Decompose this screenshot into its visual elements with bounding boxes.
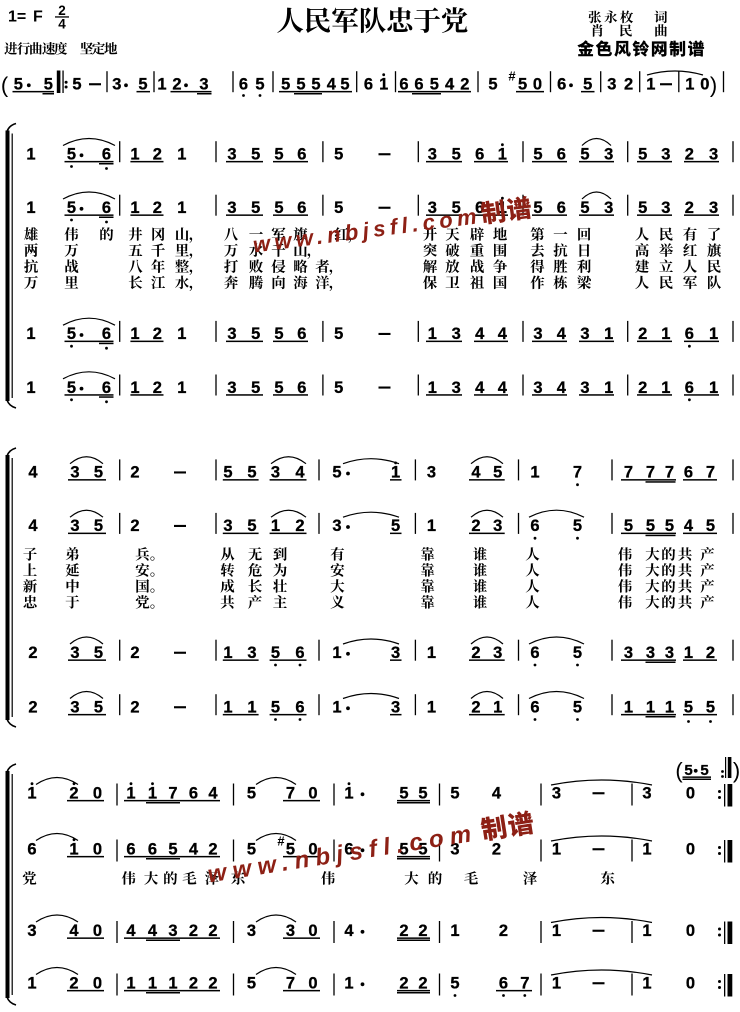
svg-text:0: 0	[533, 76, 542, 94]
svg-text:5: 5	[391, 517, 400, 535]
svg-text:4: 4	[557, 379, 567, 397]
svg-text:1: 1	[130, 146, 139, 164]
svg-text:0: 0	[686, 785, 695, 803]
svg-text:7: 7	[286, 785, 295, 803]
svg-text:1: 1	[427, 644, 436, 662]
svg-text:7: 7	[706, 464, 715, 482]
svg-text:1: 1	[130, 325, 139, 343]
svg-text:4: 4	[498, 379, 508, 397]
svg-text:1: 1	[642, 841, 651, 859]
svg-text:6: 6	[148, 841, 157, 859]
svg-text:5: 5	[334, 379, 343, 397]
svg-text:2: 2	[153, 146, 162, 164]
svg-text:): )	[710, 73, 717, 98]
svg-text:2: 2	[499, 922, 508, 940]
svg-text:3: 3	[661, 199, 670, 217]
svg-text:4: 4	[327, 76, 337, 94]
svg-text:5: 5	[67, 199, 76, 217]
svg-text:0: 0	[686, 975, 695, 993]
svg-text:5: 5	[450, 785, 459, 803]
svg-text:2: 2	[130, 517, 139, 535]
svg-text:5: 5	[247, 975, 256, 993]
svg-text:5: 5	[138, 76, 147, 94]
svg-text:4: 4	[28, 464, 38, 482]
svg-text:2: 2	[624, 76, 633, 94]
svg-text:2: 2	[130, 644, 139, 662]
svg-text:7: 7	[665, 464, 674, 482]
svg-text:5: 5	[334, 325, 343, 343]
svg-text:5: 5	[706, 517, 715, 535]
svg-text:4: 4	[189, 841, 199, 859]
svg-text:): )	[733, 758, 740, 783]
svg-text:3: 3	[452, 379, 461, 397]
svg-text:1: 1	[177, 146, 186, 164]
svg-text:4: 4	[69, 922, 79, 940]
svg-text:5: 5	[271, 699, 280, 717]
svg-text:4: 4	[208, 785, 218, 803]
svg-text:1: 1	[642, 975, 651, 993]
svg-text:3: 3	[332, 517, 341, 535]
svg-text:3: 3	[227, 379, 236, 397]
svg-text:5: 5	[94, 644, 103, 662]
svg-text:2: 2	[208, 922, 217, 940]
svg-text:1: 1	[493, 699, 502, 717]
svg-text:3: 3	[493, 644, 502, 662]
svg-text:1: 1	[427, 699, 436, 717]
svg-text:1: 1	[685, 76, 694, 94]
svg-text:5: 5	[251, 146, 260, 164]
svg-text:4: 4	[492, 785, 502, 803]
svg-text:6: 6	[530, 517, 539, 535]
svg-text:3: 3	[168, 922, 177, 940]
svg-text:3: 3	[227, 199, 236, 217]
svg-text:5: 5	[488, 76, 497, 94]
svg-text:5: 5	[255, 76, 264, 94]
svg-text:4: 4	[126, 922, 136, 940]
svg-text:6: 6	[499, 975, 508, 993]
svg-text:5: 5	[14, 76, 23, 94]
svg-text:6: 6	[102, 379, 111, 397]
svg-text:1: 1	[661, 325, 670, 343]
svg-text:1: 1	[552, 841, 561, 859]
svg-text:3: 3	[227, 146, 236, 164]
svg-text:1: 1	[428, 325, 437, 343]
svg-text:6: 6	[685, 325, 694, 343]
svg-text:1: 1	[684, 644, 693, 662]
svg-text:3: 3	[493, 517, 502, 535]
svg-text:6: 6	[475, 146, 484, 164]
svg-text:0: 0	[93, 841, 102, 859]
svg-text:3: 3	[580, 379, 589, 397]
svg-text:5: 5	[247, 785, 256, 803]
svg-text:5: 5	[311, 76, 320, 94]
svg-text:2: 2	[208, 841, 217, 859]
svg-text:2: 2	[418, 922, 427, 940]
svg-text:1: 1	[177, 199, 186, 217]
svg-text:4: 4	[295, 464, 305, 482]
svg-text:5: 5	[418, 785, 427, 803]
svg-text:6: 6	[399, 76, 408, 94]
svg-text:0: 0	[308, 785, 317, 803]
svg-text:4: 4	[684, 517, 694, 535]
svg-text:1: 1	[247, 699, 256, 717]
svg-text:5: 5	[580, 199, 589, 217]
svg-text:5: 5	[274, 379, 283, 397]
svg-text:6: 6	[364, 76, 373, 94]
svg-text:0: 0	[686, 922, 695, 940]
svg-text:3: 3	[428, 146, 437, 164]
svg-text:3: 3	[223, 517, 232, 535]
svg-text:5: 5	[67, 325, 76, 343]
svg-text:7: 7	[646, 464, 655, 482]
svg-text:6: 6	[189, 785, 198, 803]
svg-text:5: 5	[247, 464, 256, 482]
svg-text:1: 1	[126, 785, 135, 803]
svg-text:1: 1	[26, 199, 35, 217]
svg-text:6: 6	[557, 76, 566, 94]
svg-text:6: 6	[27, 841, 36, 859]
svg-text:1: 1	[27, 975, 36, 993]
svg-text:5: 5	[296, 76, 305, 94]
svg-text:3: 3	[247, 922, 256, 940]
svg-text:5: 5	[340, 76, 349, 94]
svg-text:2: 2	[638, 379, 647, 397]
svg-text:2: 2	[706, 644, 715, 662]
svg-text:6: 6	[239, 76, 248, 94]
svg-text:0: 0	[93, 922, 102, 940]
svg-text:5: 5	[638, 146, 647, 164]
svg-text:5: 5	[251, 325, 260, 343]
svg-text:2: 2	[153, 199, 162, 217]
svg-text:3: 3	[552, 785, 561, 803]
svg-text:2: 2	[69, 785, 78, 803]
svg-text:3: 3	[70, 464, 79, 482]
svg-text:5: 5	[44, 76, 53, 94]
svg-text:4: 4	[498, 325, 508, 343]
svg-text:5: 5	[251, 199, 260, 217]
svg-text:2: 2	[685, 146, 694, 164]
svg-text:6: 6	[530, 699, 539, 717]
svg-text:1: 1	[661, 379, 670, 397]
svg-text:1: 1	[642, 922, 651, 940]
svg-text:5: 5	[583, 76, 592, 94]
svg-text:5: 5	[274, 199, 283, 217]
svg-text:1: 1	[332, 699, 341, 717]
svg-text:5: 5	[646, 517, 655, 535]
svg-text:1: 1	[344, 785, 353, 803]
svg-text:1=: 1=	[8, 9, 26, 26]
svg-text:(: (	[675, 758, 683, 783]
svg-text:5: 5	[274, 325, 283, 343]
svg-text:0: 0	[700, 76, 709, 94]
svg-text:1: 1	[69, 841, 78, 859]
svg-text:3: 3	[642, 785, 651, 803]
svg-text:#: #	[277, 834, 285, 849]
svg-text:7: 7	[520, 975, 529, 993]
svg-text:3: 3	[391, 644, 400, 662]
svg-text:5: 5	[684, 699, 693, 717]
svg-text:1: 1	[552, 922, 561, 940]
svg-text:5: 5	[580, 146, 589, 164]
svg-text:4: 4	[58, 17, 66, 32]
svg-text:5: 5	[573, 644, 582, 662]
svg-text:2: 2	[638, 325, 647, 343]
svg-text:2: 2	[399, 922, 408, 940]
svg-text:6: 6	[557, 146, 566, 164]
svg-text:5: 5	[573, 699, 582, 717]
svg-text:1: 1	[27, 785, 36, 803]
svg-text:5: 5	[168, 841, 177, 859]
svg-text:6: 6	[530, 644, 539, 662]
svg-text:2: 2	[399, 975, 408, 993]
svg-text:0: 0	[686, 841, 695, 859]
svg-text:5: 5	[247, 517, 256, 535]
svg-text:3: 3	[665, 644, 674, 662]
svg-text:1: 1	[148, 785, 157, 803]
svg-text:5: 5	[67, 146, 76, 164]
svg-text:6: 6	[684, 464, 693, 482]
svg-text:1: 1	[177, 379, 186, 397]
svg-text:2: 2	[471, 699, 480, 717]
svg-text:5: 5	[94, 464, 103, 482]
svg-text:1: 1	[126, 975, 135, 993]
svg-text:7: 7	[624, 464, 633, 482]
svg-text:6: 6	[102, 199, 111, 217]
svg-text:1: 1	[130, 379, 139, 397]
svg-text:1: 1	[177, 325, 186, 343]
svg-text:5: 5	[450, 975, 459, 993]
svg-text:3: 3	[604, 146, 613, 164]
svg-text:5: 5	[624, 517, 633, 535]
svg-text:4: 4	[344, 922, 354, 940]
svg-text:6: 6	[414, 76, 423, 94]
svg-text:3: 3	[247, 644, 256, 662]
svg-text:3: 3	[709, 146, 718, 164]
svg-text:2: 2	[153, 325, 162, 343]
svg-text:3: 3	[70, 517, 79, 535]
svg-text:6: 6	[295, 699, 304, 717]
svg-text:3: 3	[427, 464, 436, 482]
svg-text:0: 0	[93, 785, 102, 803]
svg-text:3: 3	[227, 325, 236, 343]
svg-text:3: 3	[286, 922, 295, 940]
svg-text:3: 3	[70, 644, 79, 662]
svg-text:1: 1	[604, 379, 613, 397]
svg-text:2: 2	[208, 975, 217, 993]
svg-text:5: 5	[334, 146, 343, 164]
svg-text:3: 3	[199, 76, 208, 94]
svg-text:5: 5	[251, 379, 260, 397]
svg-text:1: 1	[26, 325, 35, 343]
svg-text:1: 1	[223, 644, 232, 662]
svg-text:1: 1	[148, 975, 157, 993]
svg-text:0: 0	[308, 975, 317, 993]
svg-text:2: 2	[69, 975, 78, 993]
svg-text:6: 6	[297, 146, 306, 164]
svg-text:3: 3	[27, 922, 36, 940]
svg-text:6: 6	[685, 379, 694, 397]
svg-text:3: 3	[70, 699, 79, 717]
svg-text:2: 2	[189, 922, 198, 940]
svg-text:1: 1	[130, 199, 139, 217]
svg-text:1: 1	[427, 517, 436, 535]
svg-text:1: 1	[450, 922, 459, 940]
svg-text:3: 3	[709, 199, 718, 217]
svg-text:5: 5	[665, 517, 674, 535]
svg-text:5: 5	[332, 464, 341, 482]
svg-text:3: 3	[607, 76, 616, 94]
svg-text:1: 1	[709, 325, 718, 343]
svg-text:3: 3	[624, 644, 633, 662]
svg-text:3: 3	[661, 146, 670, 164]
svg-text:1: 1	[26, 379, 35, 397]
svg-text:1: 1	[530, 464, 539, 482]
svg-text:5: 5	[281, 76, 290, 94]
svg-text:1: 1	[604, 325, 613, 343]
svg-text:7: 7	[168, 785, 177, 803]
svg-text:1: 1	[624, 699, 633, 717]
svg-text:5: 5	[452, 146, 461, 164]
svg-text:5: 5	[223, 464, 232, 482]
svg-text:1: 1	[26, 146, 35, 164]
svg-text:3: 3	[533, 379, 542, 397]
svg-text:6: 6	[102, 325, 111, 343]
svg-text:1: 1	[552, 975, 561, 993]
svg-text:5: 5	[67, 379, 76, 397]
svg-text:3: 3	[452, 325, 461, 343]
svg-text:5: 5	[274, 146, 283, 164]
svg-text:2: 2	[130, 464, 139, 482]
svg-text:2: 2	[460, 76, 469, 94]
svg-text:1: 1	[379, 76, 388, 94]
svg-text:2: 2	[295, 517, 304, 535]
svg-text:1: 1	[344, 975, 353, 993]
svg-text:2: 2	[28, 699, 37, 717]
svg-text:1: 1	[332, 644, 341, 662]
svg-text:1: 1	[709, 379, 718, 397]
svg-text:3: 3	[533, 325, 542, 343]
svg-text:7: 7	[286, 975, 295, 993]
svg-text:4: 4	[475, 325, 485, 343]
svg-text:#: #	[508, 69, 516, 84]
svg-text:3: 3	[271, 464, 280, 482]
svg-text:5: 5	[533, 199, 542, 217]
svg-text:4: 4	[28, 517, 38, 535]
svg-text:5: 5	[518, 76, 527, 94]
svg-text:4: 4	[557, 325, 567, 343]
svg-text:1: 1	[157, 76, 166, 94]
svg-text:0: 0	[308, 922, 317, 940]
svg-text:6: 6	[297, 199, 306, 217]
svg-text:4: 4	[445, 76, 455, 94]
svg-text:5: 5	[493, 464, 502, 482]
svg-text:6: 6	[297, 325, 306, 343]
svg-text:6: 6	[557, 199, 566, 217]
svg-text:1: 1	[271, 517, 280, 535]
svg-text:3: 3	[391, 699, 400, 717]
svg-text:1: 1	[168, 975, 177, 993]
svg-text:1: 1	[223, 699, 232, 717]
svg-text:7: 7	[573, 464, 582, 482]
svg-text:2: 2	[471, 644, 480, 662]
svg-text:3: 3	[646, 644, 655, 662]
svg-text:4: 4	[475, 379, 485, 397]
svg-text:5: 5	[72, 76, 81, 94]
svg-text:2: 2	[418, 975, 427, 993]
svg-text:3: 3	[112, 76, 121, 94]
svg-text:3: 3	[604, 199, 613, 217]
svg-text:5: 5	[271, 644, 280, 662]
svg-text:2: 2	[172, 76, 181, 94]
svg-text:3: 3	[580, 325, 589, 343]
svg-text:6: 6	[297, 379, 306, 397]
svg-text:6: 6	[126, 841, 135, 859]
svg-text:5: 5	[334, 199, 343, 217]
svg-text:4: 4	[471, 464, 481, 482]
svg-text:5: 5	[430, 76, 439, 94]
svg-text:1: 1	[428, 379, 437, 397]
svg-text:1: 1	[646, 76, 655, 94]
svg-text:2: 2	[130, 699, 139, 717]
svg-text:1: 1	[665, 699, 674, 717]
svg-text:5: 5	[399, 785, 408, 803]
svg-text:2: 2	[492, 841, 501, 859]
svg-text:(: (	[1, 73, 9, 98]
svg-text:2: 2	[153, 379, 162, 397]
svg-text:1: 1	[391, 464, 400, 482]
svg-text:5: 5	[94, 699, 103, 717]
svg-text:6: 6	[295, 644, 304, 662]
svg-text:2: 2	[28, 644, 37, 662]
svg-text:0: 0	[93, 975, 102, 993]
svg-text:1: 1	[498, 146, 507, 164]
svg-text:F: F	[33, 9, 43, 26]
svg-text:1: 1	[646, 699, 655, 717]
svg-text:2: 2	[189, 975, 198, 993]
svg-text:2: 2	[471, 517, 480, 535]
svg-text:5: 5	[638, 199, 647, 217]
svg-text:4: 4	[148, 922, 158, 940]
svg-text:5: 5	[706, 699, 715, 717]
svg-text:6: 6	[102, 146, 111, 164]
svg-text:2: 2	[685, 199, 694, 217]
svg-text:5: 5	[573, 517, 582, 535]
svg-text:5: 5	[94, 517, 103, 535]
svg-text:5: 5	[533, 146, 542, 164]
